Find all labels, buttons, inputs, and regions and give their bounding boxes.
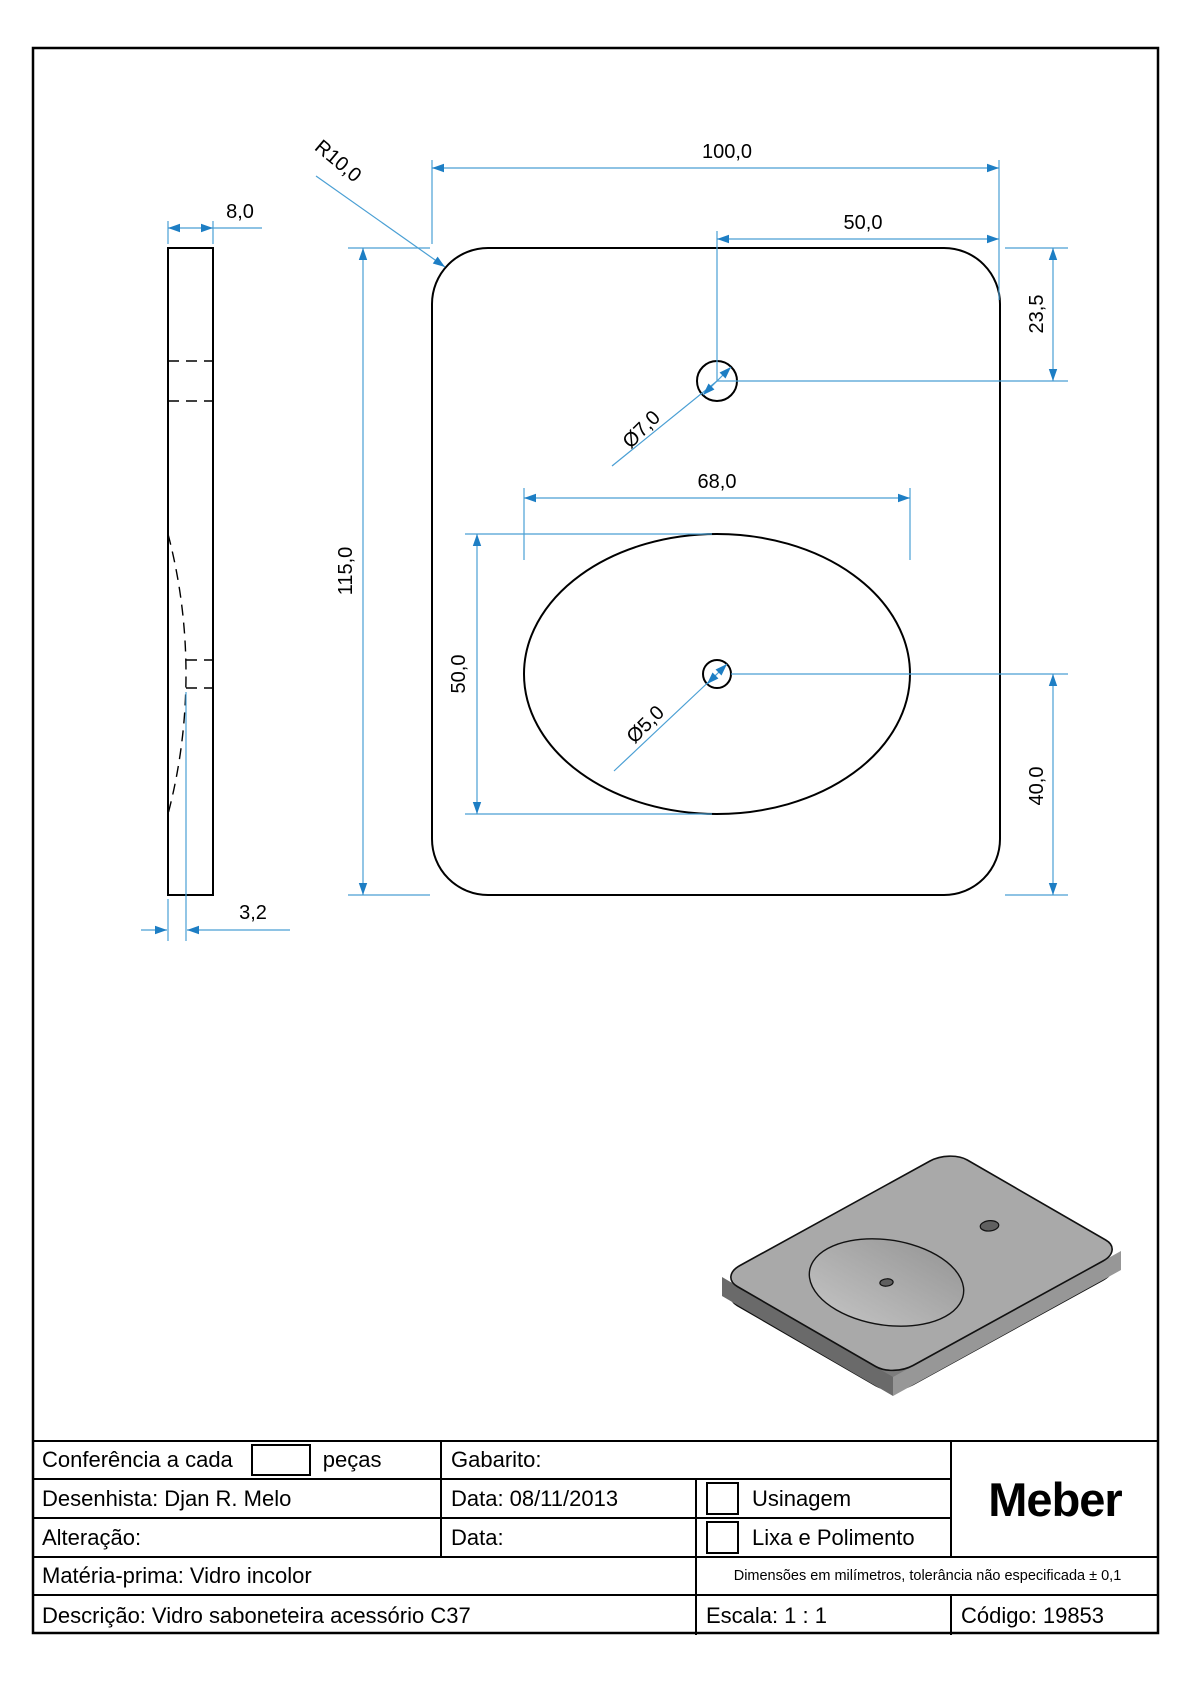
dim-label-thickness: 8,0 bbox=[226, 201, 254, 223]
usinagem-checkbox bbox=[706, 1482, 739, 1515]
side-profile bbox=[168, 248, 213, 895]
title-row-description: Descrição: Vidro saboneteira acessório C… bbox=[33, 1596, 1158, 1635]
scale-cell: Escala: 1 : 1 bbox=[697, 1596, 952, 1635]
code-value: 19853 bbox=[1043, 1603, 1104, 1629]
company-logo: Meber bbox=[988, 1472, 1121, 1527]
code-label: Código: bbox=[961, 1603, 1037, 1629]
dim-label-corner-radius: R10,0 bbox=[310, 136, 365, 187]
dim-label-recess-height: 50,0 bbox=[448, 655, 470, 694]
dim-label-recess-width: 68,0 bbox=[698, 471, 737, 493]
conference-cell: Conferência a cada peças bbox=[33, 1442, 442, 1480]
material-cell: Matéria-prima: Vidro incolor bbox=[33, 1558, 697, 1596]
side-view bbox=[168, 248, 213, 895]
dim-label-hole-offset: 50,0 bbox=[844, 212, 883, 234]
conference-suffix: peças bbox=[323, 1447, 382, 1473]
dim-label-hole-from-top: 23,5 bbox=[1026, 295, 1048, 334]
tolerance-cell: Dimensões em milímetros, tolerância não … bbox=[697, 1558, 1158, 1596]
drawing-canvas: 8,0 3,2 100,0 50,0 23,5 115,0 R10,0 Ø7,0… bbox=[0, 0, 1190, 1684]
description-label: Descrição: bbox=[42, 1603, 146, 1629]
front-view bbox=[432, 248, 1000, 895]
material-label: Matéria-prima: bbox=[42, 1563, 184, 1589]
logo-cell: Meber bbox=[952, 1442, 1158, 1558]
date2-label: Data: bbox=[451, 1525, 504, 1551]
gabarito-cell: Gabarito: bbox=[442, 1442, 952, 1480]
date-label: Data: bbox=[451, 1486, 504, 1512]
lixa-cell: Lixa e Polimento bbox=[697, 1519, 952, 1558]
material-value: Vidro incolor bbox=[190, 1563, 312, 1589]
alteration-label: Alteração: bbox=[42, 1525, 141, 1551]
conference-count-box bbox=[251, 1444, 311, 1476]
dim-label-height: 115,0 bbox=[335, 547, 357, 596]
conference-label: Conferência a cada bbox=[42, 1447, 233, 1473]
lixa-checkbox bbox=[706, 1521, 739, 1554]
dim-label-recess-depth: 3,2 bbox=[239, 902, 267, 924]
dim-corner-radius bbox=[316, 176, 445, 267]
gabarito-label: Gabarito: bbox=[451, 1447, 542, 1473]
date2-cell: Data: bbox=[442, 1519, 697, 1558]
date-cell: Data: 08/11/2013 bbox=[442, 1480, 697, 1519]
isometric-view bbox=[720, 1150, 1123, 1396]
lixa-label: Lixa e Polimento bbox=[752, 1525, 915, 1551]
designer-cell: Desenhista: Djan R. Melo bbox=[33, 1480, 442, 1519]
usinagem-label: Usinagem bbox=[752, 1486, 851, 1512]
dim-recess-depth bbox=[141, 692, 290, 941]
designer-label: Desenhista: bbox=[42, 1486, 158, 1512]
dim-label-width: 100,0 bbox=[702, 141, 752, 163]
description-value: Vidro saboneteira acessório C37 bbox=[152, 1603, 471, 1629]
dim-label-hole-from-bottom: 40,0 bbox=[1026, 767, 1048, 806]
designer-value: Djan R. Melo bbox=[164, 1486, 291, 1512]
title-block: Conferência a cada peças Gabarito: Desen… bbox=[33, 1440, 1158, 1633]
dim-thickness bbox=[168, 221, 262, 244]
title-row-material: Matéria-prima: Vidro incolor Dimensões e… bbox=[33, 1558, 1158, 1596]
dim-overall-height bbox=[348, 248, 430, 895]
scale-label: Escala: bbox=[706, 1603, 778, 1629]
scale-value: 1 : 1 bbox=[784, 1603, 827, 1629]
usinagem-cell: Usinagem bbox=[697, 1480, 952, 1519]
tolerance-note: Dimensões em milímetros, tolerância não … bbox=[734, 1568, 1122, 1584]
date-value: 08/11/2013 bbox=[510, 1486, 618, 1512]
alteration-cell: Alteração: bbox=[33, 1519, 442, 1558]
description-cell: Descrição: Vidro saboneteira acessório C… bbox=[33, 1596, 697, 1635]
code-cell: Código: 19853 bbox=[952, 1596, 1158, 1635]
drawing-sheet: 8,0 3,2 100,0 50,0 23,5 115,0 R10,0 Ø7,0… bbox=[0, 0, 1190, 1684]
